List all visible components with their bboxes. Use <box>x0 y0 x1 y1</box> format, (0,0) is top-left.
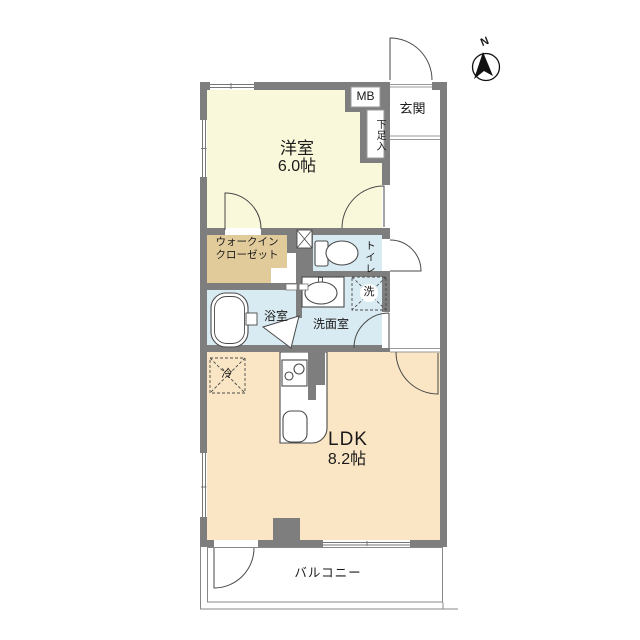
balcony-label: バルコニー <box>288 566 368 580</box>
opening-bedroom-door <box>382 185 390 228</box>
refrigerator-space-label: 冷 <box>219 368 235 381</box>
bathroom-label: 浴室 <box>257 310 295 324</box>
toilet-label: トイレ <box>359 238 375 276</box>
opening-entrance-door <box>390 82 432 90</box>
walk-in-closet-label: ウォークイン クローゼット <box>205 236 289 262</box>
bath-faucet-deck <box>246 313 257 325</box>
balcony-door-swing <box>214 548 254 588</box>
bedroom-name-label: 洋室 <box>247 139 347 159</box>
entrance-label: 玄関 <box>385 102 440 117</box>
washroom-label: 洗面室 <box>300 318 362 332</box>
walk-in-closet-line2: クローゼット <box>216 249 279 261</box>
stove-burner-small <box>285 372 293 380</box>
opening-toilet-door <box>382 239 390 271</box>
bedroom-size-label: 6.0帖 <box>247 158 347 176</box>
stove-burner-large <box>294 364 304 374</box>
walk-in-closet-line1: ウォークイン <box>216 236 279 248</box>
wall-right <box>440 82 447 547</box>
opening-balcony-door <box>214 540 258 547</box>
compass-north-arrow <box>474 52 493 79</box>
wall-toilet-south <box>307 271 390 277</box>
toilet-bowl <box>326 241 358 265</box>
washer-space-label: 洗 <box>361 286 377 299</box>
compass <box>473 52 500 81</box>
hallway-floor <box>382 82 447 352</box>
wall-kitchen-step <box>308 385 316 400</box>
floorplan-canvas: 洋室 6.0帖 MB 下足入 玄関 ウォークイン クローゼット トイレ 洗 洗面… <box>0 0 640 640</box>
ldk-name-label: LDK <box>298 429 398 451</box>
wall-pillar <box>273 518 300 547</box>
ldk-size-label: 8.2帖 <box>297 451 397 469</box>
meter-box-label: MB <box>351 90 380 104</box>
entrance-door-swing <box>390 38 432 80</box>
closet-notch <box>271 268 287 283</box>
shoe-cabinet-label: 下足入 <box>367 112 384 158</box>
opening-window-top <box>210 82 254 90</box>
bath-shelf-2 <box>299 284 308 290</box>
opening-closet-door <box>225 228 261 235</box>
bath-shelf-1 <box>286 284 297 290</box>
wall-kitchen-stub <box>308 345 325 385</box>
vanity-sink <box>305 282 337 304</box>
